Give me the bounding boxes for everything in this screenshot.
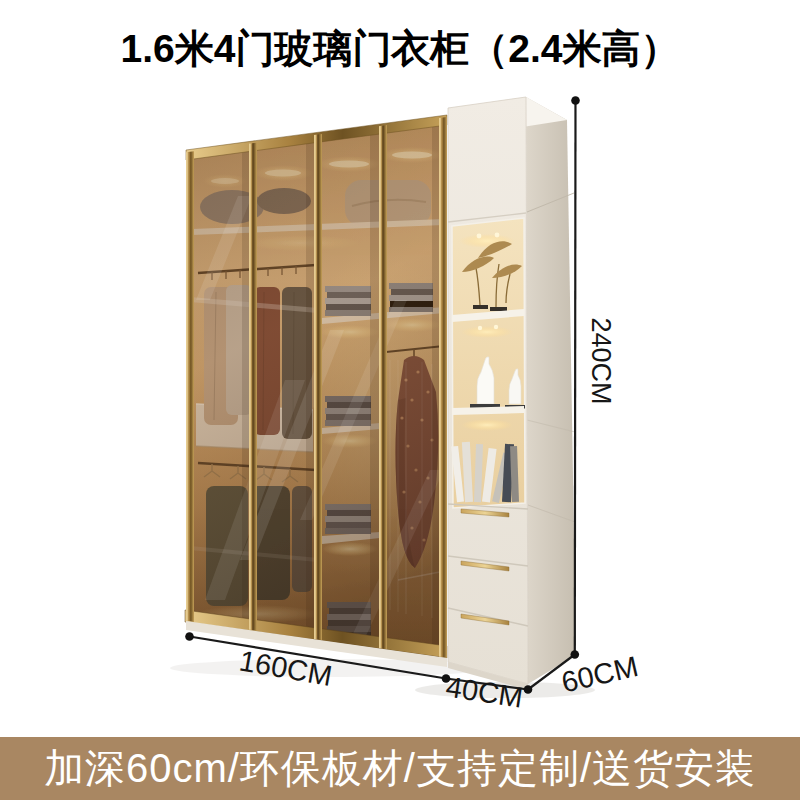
display-niche bbox=[451, 218, 525, 508]
cabinet-side-panel bbox=[526, 97, 576, 684]
display-cabinet bbox=[448, 97, 576, 690]
promo-banner-text: 加深60cm/环保板材/支持定制/送货安装 bbox=[44, 741, 756, 796]
height-dimension-line bbox=[575, 101, 576, 655]
promo-banner: 加深60cm/环保板材/支持定制/送货安装 bbox=[0, 737, 800, 800]
height-dimension-label: 240CM bbox=[586, 317, 616, 404]
width-dimension-label: 160CM bbox=[237, 644, 335, 692]
wardrobe-illustration: 240CM 160CM 40CM 60CM bbox=[0, 0, 800, 800]
product-card: 1.6米4门玻璃门衣柜（2.4米高） bbox=[0, 0, 800, 800]
